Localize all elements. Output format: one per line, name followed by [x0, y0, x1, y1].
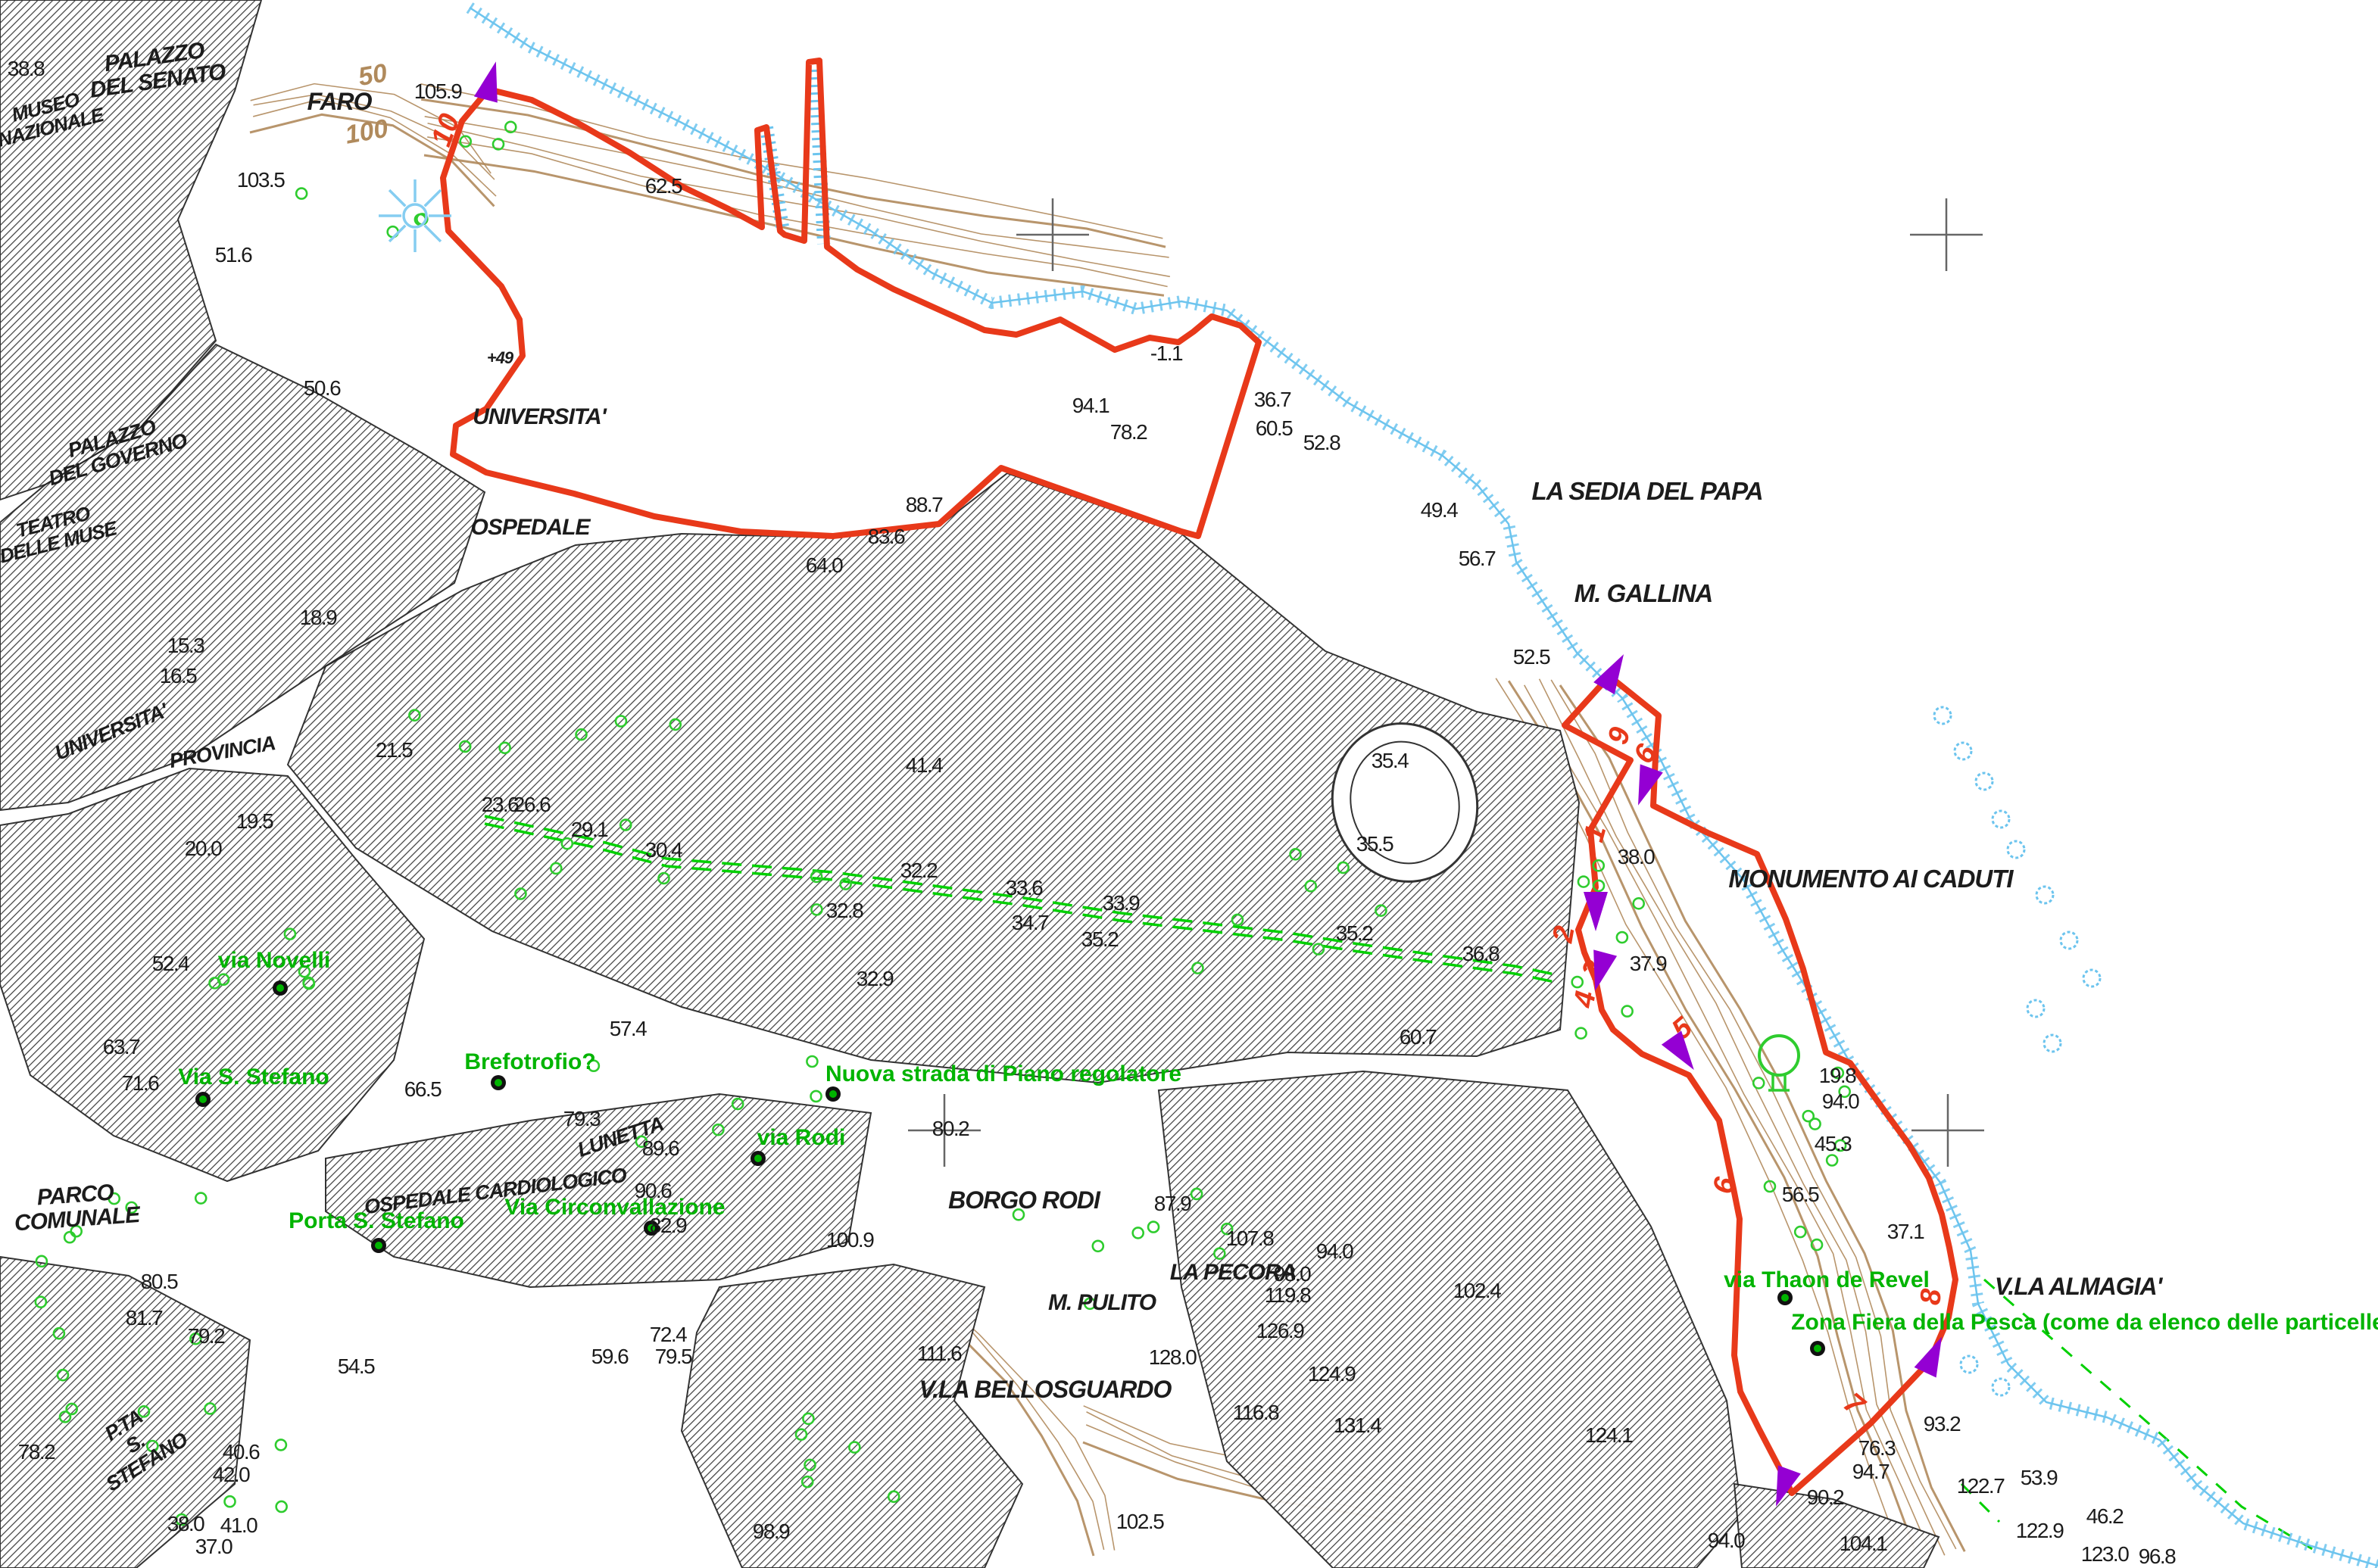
beacon-ray: [389, 190, 405, 206]
elevation-label: 78.2: [1110, 420, 1147, 444]
street-dot-core: [829, 1090, 837, 1098]
elevation-label: 32.9: [857, 967, 894, 990]
tree-symbol: [1133, 1227, 1144, 1238]
elevation-label: 30.4: [645, 838, 682, 862]
contour-line: [253, 99, 496, 196]
route-number: 6: [1708, 1174, 1742, 1196]
place-label-text: OSPEDALE: [470, 515, 591, 540]
elevation-label: 38.0: [1618, 845, 1655, 868]
elevation-label: 53.9: [2021, 1466, 2058, 1489]
elevation-label: 79.5: [655, 1345, 692, 1368]
place-label: M. PULITO: [1048, 1290, 1156, 1315]
elevation-label: 81.7: [126, 1306, 163, 1330]
elevation-label: 96.8: [2139, 1545, 2176, 1568]
elevation-label: 98.0: [1274, 1262, 1311, 1286]
tree-symbol: [1753, 1077, 1764, 1088]
elevation-label: 52.4: [152, 952, 189, 975]
place-label-text: +49: [487, 348, 514, 367]
elevation-label: 52.8: [1303, 431, 1340, 454]
seaweed-clump: [1993, 811, 2009, 828]
elevation-label: 19.8: [1819, 1064, 1856, 1087]
elevation-label: 83.6: [868, 525, 905, 548]
tree-symbol: [64, 1232, 75, 1242]
elevation-label: 37.9: [1630, 952, 1667, 975]
elevation-label: 90.2: [1807, 1485, 1844, 1509]
street-label: Nuova strada di Piano regolatore: [825, 1061, 1181, 1086]
elevation-label: 54.5: [338, 1354, 375, 1378]
elevation-label: 80.2: [932, 1117, 969, 1140]
urban-block: [1159, 1071, 1742, 1568]
seaweed-clump: [1993, 1379, 2009, 1395]
direction-arrow-icon: [474, 58, 507, 103]
elevation-label: 56.5: [1782, 1183, 1819, 1206]
boundary-loop-north: [443, 61, 1259, 536]
elevation-label: 111.6: [917, 1342, 962, 1365]
route-number: 9: [1602, 724, 1637, 747]
elevation-label: 131.4: [1334, 1414, 1381, 1437]
elevation-label: 46.2: [2086, 1504, 2124, 1528]
elevation-label: 29.1: [571, 818, 608, 841]
elevation-label: 42.0: [213, 1463, 250, 1486]
contour-line: [421, 99, 1166, 247]
elevation-label: 38.8: [8, 57, 45, 80]
place-label: LA SEDIA DEL PAPA: [1531, 477, 1762, 505]
tree-symbol: [1148, 1222, 1159, 1233]
street-dot-core: [1814, 1345, 1821, 1352]
elevation-label: 33.9: [1103, 891, 1140, 915]
elevation-label: 119.8: [1265, 1283, 1311, 1307]
contour-label: 50: [356, 58, 389, 92]
elevation-label: 79.2: [188, 1324, 225, 1348]
seaweed-clump: [1976, 773, 1993, 790]
place-label: V.LA BELLOSGUARDO: [919, 1376, 1172, 1403]
elevation-label: 122.9: [2016, 1519, 2064, 1542]
elevation-label: 50.6: [304, 376, 341, 400]
seaweed-clump: [1955, 743, 1971, 759]
tree-symbol: [296, 189, 307, 199]
elevation-label: 21.5: [376, 738, 413, 762]
elevation-label: 102.4: [1453, 1279, 1501, 1302]
elevation-label: 45.3: [1815, 1132, 1852, 1155]
elevation-label: 35.2: [1336, 921, 1373, 945]
elevation-label: 128.0: [1149, 1345, 1197, 1369]
tree-symbol: [1810, 1119, 1821, 1130]
street-label: Porta S. Stefano: [289, 1208, 464, 1233]
elevation-label: 20.0: [185, 837, 222, 860]
place-label: FARO: [307, 88, 373, 115]
elevation-label: 78.2: [18, 1440, 55, 1464]
place-label: PARCOCOMUNALE: [12, 1178, 142, 1236]
elevation-label: 37.0: [195, 1535, 232, 1558]
elevation-label: 63.7: [103, 1035, 140, 1058]
place-label: V.LA ALMAGIA': [1995, 1273, 2164, 1300]
elevation-label: 41.4: [906, 753, 943, 777]
elevation-label: 32.2: [900, 859, 938, 882]
elevation-label: 32.8: [826, 899, 863, 922]
tree-symbol: [1827, 1155, 1837, 1166]
contour-line: [428, 123, 1170, 277]
place-label-text: M. GALLINA: [1574, 579, 1712, 607]
place-label: BORGO RODI: [948, 1186, 1101, 1214]
tree-symbol: [1576, 1028, 1587, 1039]
direction-arrow-icon: [1627, 764, 1663, 809]
elevation-label: 56.7: [1459, 547, 1496, 570]
seaweed-clump: [2008, 841, 2024, 858]
topographic-map-canvas: PALAZZODEL SENATOMUSEONAZIONALEFAROPALAZ…: [0, 0, 2378, 1568]
elevation-label: 123.0: [2081, 1542, 2129, 1566]
seaweed-clump: [2083, 970, 2100, 987]
elevation-label: 124.1: [1585, 1423, 1633, 1447]
elevation-label: 94.0: [1822, 1089, 1859, 1113]
place-label-text: V.LA BELLOSGUARDO: [919, 1376, 1172, 1403]
seaweed-clump: [1961, 1356, 1977, 1373]
place-label-text: PARCOCOMUNALE: [12, 1178, 142, 1236]
elevation-label: 35.4: [1372, 749, 1409, 772]
elevation-label: 35.5: [1356, 832, 1393, 856]
place-label-text: FARO: [307, 88, 373, 115]
elevation-label: 37.1: [1887, 1220, 1924, 1243]
elevation-label: 66.5: [404, 1077, 442, 1101]
contour-line: [420, 84, 1162, 238]
elevation-label: 64.0: [806, 553, 843, 577]
elevation-label: 59.6: [591, 1345, 629, 1368]
seaweed-clump: [2036, 887, 2053, 903]
tree-symbol: [1093, 1241, 1103, 1252]
place-label-text: UNIVERSITA': [473, 404, 607, 429]
elevation-label: 87.9: [1154, 1192, 1191, 1215]
elevation-label: 57.4: [610, 1017, 647, 1040]
beacon-symbol: [379, 179, 451, 252]
elevation-label: 94.0: [1316, 1239, 1353, 1263]
place-label: M. GALLINA: [1574, 579, 1712, 607]
grid-cross: [1911, 1094, 1984, 1167]
elevation-label: 51.6: [215, 243, 252, 267]
elevation-label: 105.9: [414, 79, 462, 103]
elevation-label: 38.0: [167, 1512, 204, 1535]
seaweed-clump: [2044, 1035, 2061, 1052]
tree-symbol: [276, 1501, 287, 1512]
elevation-label: 94.0: [1708, 1529, 1745, 1552]
place-label: +49: [487, 348, 514, 367]
elevation-label: 52.5: [1513, 645, 1550, 669]
street-label: Via Circonvallazione: [504, 1195, 725, 1220]
elevation-label: 94.7: [1852, 1460, 1890, 1483]
tree-symbol: [1617, 932, 1627, 943]
elevation-label: 49.4: [1421, 498, 1458, 522]
street-label: via Novelli: [218, 948, 330, 973]
street-dot-core: [495, 1079, 502, 1086]
elevation-label: 116.8: [1233, 1401, 1279, 1424]
elevation-label: 124.9: [1308, 1362, 1356, 1386]
seaweed-clump: [2061, 932, 2077, 949]
elevation-label: 18.9: [300, 606, 337, 629]
tree-symbol: [276, 1439, 286, 1450]
contour-line: [427, 137, 1167, 287]
elevation-label: 93.2: [1924, 1412, 1961, 1436]
elevation-label: 102.5: [1116, 1510, 1164, 1533]
elevation-label: 35.2: [1081, 927, 1119, 951]
street-label: Via S. Stefano: [178, 1065, 329, 1089]
urban-block: [682, 1264, 1022, 1568]
elevation-label: 15.3: [167, 634, 204, 657]
elevation-label: 122.7: [1957, 1474, 2005, 1498]
elevation-label: 98.9: [753, 1520, 790, 1543]
route-number: 8: [1915, 1287, 1948, 1307]
tree-symbol: [1795, 1227, 1805, 1237]
street-label: via Rodi: [757, 1125, 846, 1150]
elevation-label: 94.1: [1072, 394, 1109, 417]
elevation-label: 60.7: [1400, 1025, 1437, 1049]
street-label: Zona Fiera della Pesca (come da elenco d…: [1791, 1310, 2378, 1335]
elevation-label: 126.9: [1256, 1319, 1304, 1342]
elevation-label: 40.6: [223, 1440, 260, 1464]
tree-symbol: [225, 1496, 236, 1507]
map-viewport: PALAZZODEL SENATOMUSEONAZIONALEFAROPALAZ…: [0, 0, 2378, 1568]
elevation-label: 36.8: [1462, 942, 1500, 965]
elevation-label: 88.7: [906, 493, 943, 516]
place-label: MONUMENTO AI CADUTI: [1728, 865, 2014, 893]
elevation-label: 34.7: [1012, 911, 1049, 934]
elevation-label: 107.8: [1226, 1227, 1274, 1250]
beacon-ray: [425, 190, 441, 206]
seaweed-clump: [1934, 707, 1951, 724]
street-dot-core: [1781, 1294, 1789, 1301]
elevation-label: 76.3: [1858, 1436, 1896, 1460]
street-dot-core: [199, 1096, 207, 1103]
elevation-label: 72.4: [650, 1323, 687, 1346]
elevation-label: 100.9: [826, 1228, 874, 1252]
place-label-text: BORGO RODI: [948, 1186, 1101, 1214]
tree-symbol: [1622, 1006, 1633, 1017]
elevation-label: 26.6: [513, 793, 551, 816]
tree-symbol: [1572, 977, 1583, 987]
tree-symbol: [811, 1091, 822, 1102]
place-label: OSPEDALE: [470, 515, 591, 540]
street-dot-core: [754, 1155, 762, 1162]
elevation-label: 79.3: [563, 1107, 601, 1130]
elevation-label: 19.5: [236, 809, 273, 833]
place-label-text: MONUMENTO AI CADUTI: [1728, 865, 2014, 893]
place-label-text: LA SEDIA DEL PAPA: [1531, 477, 1762, 505]
tree-symbol: [195, 1193, 206, 1204]
elevation-label: 62.5: [645, 174, 682, 198]
elevation-label: 33.6: [1006, 876, 1043, 899]
seaweed-clump: [2027, 1000, 2044, 1017]
elevation-label: 41.0: [220, 1513, 257, 1537]
street-label: Brefotrofio?: [464, 1049, 595, 1074]
route-number: 7: [1837, 1387, 1871, 1423]
place-label-text: V.LA ALMAGIA': [1995, 1273, 2164, 1300]
elevation-label: 60.5: [1256, 416, 1293, 440]
beacon-ray: [425, 226, 441, 242]
tree-symbol: [807, 1056, 817, 1067]
street-label: via Thaon de Revel: [1724, 1267, 1930, 1292]
street-dot-core: [375, 1242, 382, 1249]
elevation-label: 89.6: [642, 1136, 679, 1160]
place-label: UNIVERSITA': [473, 404, 607, 429]
elevation-label: 104.1: [1840, 1532, 1887, 1555]
place-label-text: M. PULITO: [1048, 1290, 1156, 1315]
elevation-label: 103.5: [237, 168, 285, 192]
elevation-label: 80.5: [141, 1270, 178, 1293]
elevation-label: -1.1: [1150, 341, 1183, 365]
tree-symbol: [1578, 877, 1589, 887]
street-dot-core: [276, 984, 284, 992]
elevation-label: 16.5: [160, 664, 197, 687]
elevation-label: 71.6: [122, 1071, 159, 1095]
tree-symbol: [1634, 898, 1644, 909]
elevation-label: 36.7: [1254, 388, 1291, 411]
grid-cross: [1910, 198, 1983, 271]
